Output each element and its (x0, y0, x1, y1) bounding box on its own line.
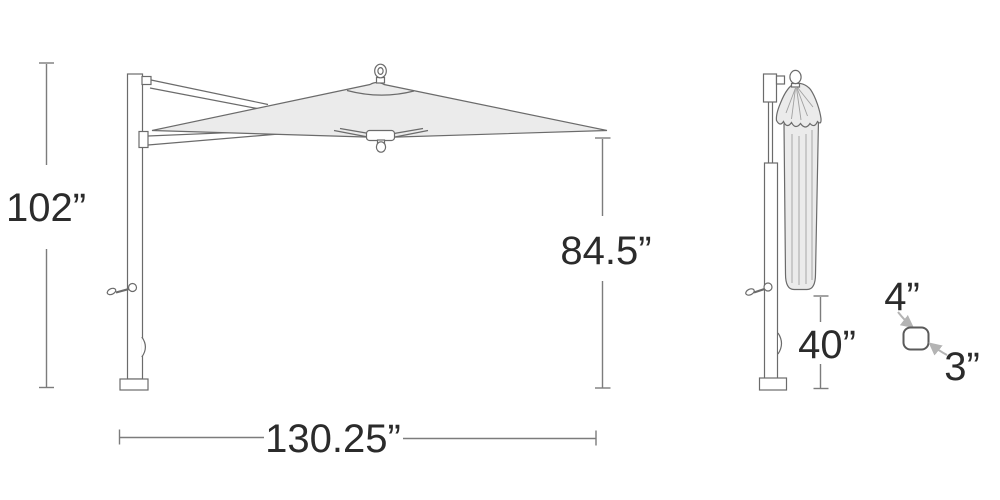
pole-depth-label: 4” (884, 275, 920, 319)
folded-canopy-tube (784, 120, 819, 290)
cantilever-upper-arm (150, 80, 268, 110)
overall-width-label: 130.25” (265, 417, 401, 461)
folded-pole (765, 102, 778, 379)
umbrella-base (120, 379, 148, 390)
dimension-overall-width: 130.25” (120, 417, 597, 461)
pole-cross-section-shape (904, 328, 929, 350)
folded-finial (790, 70, 801, 87)
foot-pedal (142, 337, 146, 357)
umbrella-pole (128, 74, 143, 379)
umbrella-dimension-diagram: 102” 84.5” 130.25” 40” 4” (0, 0, 1000, 500)
dimension-folded-height: 40” (798, 296, 856, 389)
canopy-hub (367, 131, 395, 153)
open-umbrella-drawing (106, 64, 607, 390)
pole-cross-section-detail: 4” 3” (884, 275, 980, 389)
folded-foot-pedal (778, 333, 782, 354)
open-canopy (152, 83, 607, 138)
canopy-clearance-label: 84.5” (560, 229, 651, 273)
finial-ring (375, 64, 387, 83)
folded-height-label: 40” (798, 323, 856, 367)
lower-arm-bracket (139, 132, 148, 148)
dimension-canopy-clearance: 84.5” (560, 138, 651, 388)
pole-width-label: 3” (944, 345, 980, 389)
folded-arm-bracket (764, 74, 785, 102)
dimension-overall-height: 102” (6, 63, 86, 388)
overall-height-label: 102” (6, 186, 86, 230)
upper-arm-bracket (142, 77, 151, 85)
diagram-canvas: 102” 84.5” 130.25” 40” 4” (0, 0, 1000, 500)
folded-umbrella-base (760, 378, 787, 390)
